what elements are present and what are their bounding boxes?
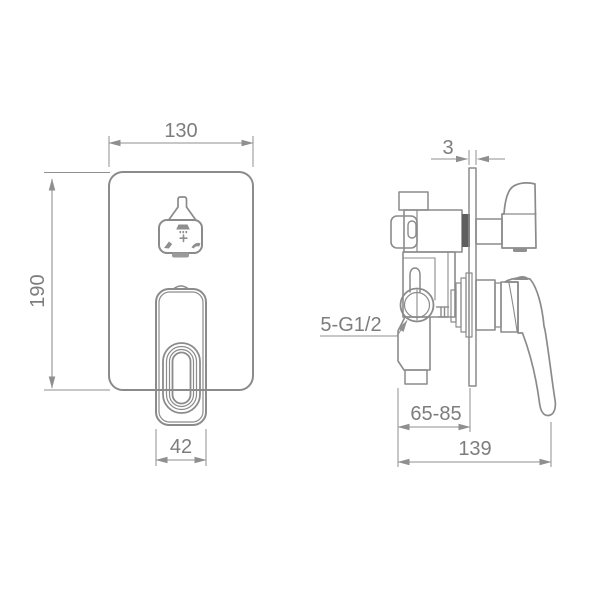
diverter-bottom-tab xyxy=(172,253,189,258)
diverter-knob-side xyxy=(476,183,536,252)
knob-body-side xyxy=(502,183,536,248)
lever-arm xyxy=(505,278,555,416)
dim-mounting-depth-label: 65-85 xyxy=(410,403,461,425)
dim-plate-width: 130 xyxy=(109,120,253,167)
lever-inner-line xyxy=(509,283,517,331)
dim-plate-thickness-label: 3 xyxy=(442,137,453,159)
spout-right-icon xyxy=(192,243,201,249)
dim-plate-width-label: 130 xyxy=(164,120,197,142)
handle-ring-hole xyxy=(173,353,191,404)
diverter-stem xyxy=(169,197,197,220)
shower-spray-dot xyxy=(183,231,185,233)
shower-spray-dot xyxy=(180,231,182,233)
dim-plate-height-label: 190 xyxy=(27,274,49,307)
shower-icon xyxy=(176,225,190,230)
cap-slot xyxy=(408,221,416,238)
dim-overall-depth: 139 xyxy=(398,422,551,467)
bolt-detail xyxy=(436,307,449,317)
inlet-thread-label: 5-G1/2 xyxy=(320,314,381,336)
shower-spray-dot xyxy=(186,231,188,233)
side-view: 3 xyxy=(320,137,555,467)
dim-overall-depth-label: 139 xyxy=(458,438,491,460)
handle-side xyxy=(476,276,555,416)
front-plate xyxy=(109,172,253,390)
escutcheon-step xyxy=(495,283,501,327)
spout-left-icon xyxy=(164,242,172,249)
valve-body xyxy=(391,192,472,384)
leader-inlet-thread: 5-G1/2 xyxy=(320,314,407,336)
front-view: 130 190 xyxy=(27,120,253,466)
dim-handle-width: 42 xyxy=(156,429,206,466)
technical-drawing-canvas: 130 190 xyxy=(0,0,600,600)
lower-body-block xyxy=(398,317,430,370)
knob-bottom-notch xyxy=(513,248,527,252)
handle-front xyxy=(156,286,206,425)
knob-stem-side xyxy=(476,219,502,244)
bottom-pipe-stub xyxy=(405,370,427,384)
dim-handle-width-label: 42 xyxy=(170,436,192,458)
lever-base xyxy=(501,282,518,332)
escutcheon-side xyxy=(476,280,495,330)
dim-plate-thickness: 3 xyxy=(431,137,505,165)
diverter-knob-front xyxy=(159,197,202,258)
top-pipe-stub xyxy=(399,192,428,210)
shower-mixer-dimension-drawing: 130 190 xyxy=(0,0,600,600)
dim-plate-height: 190 xyxy=(27,173,110,391)
